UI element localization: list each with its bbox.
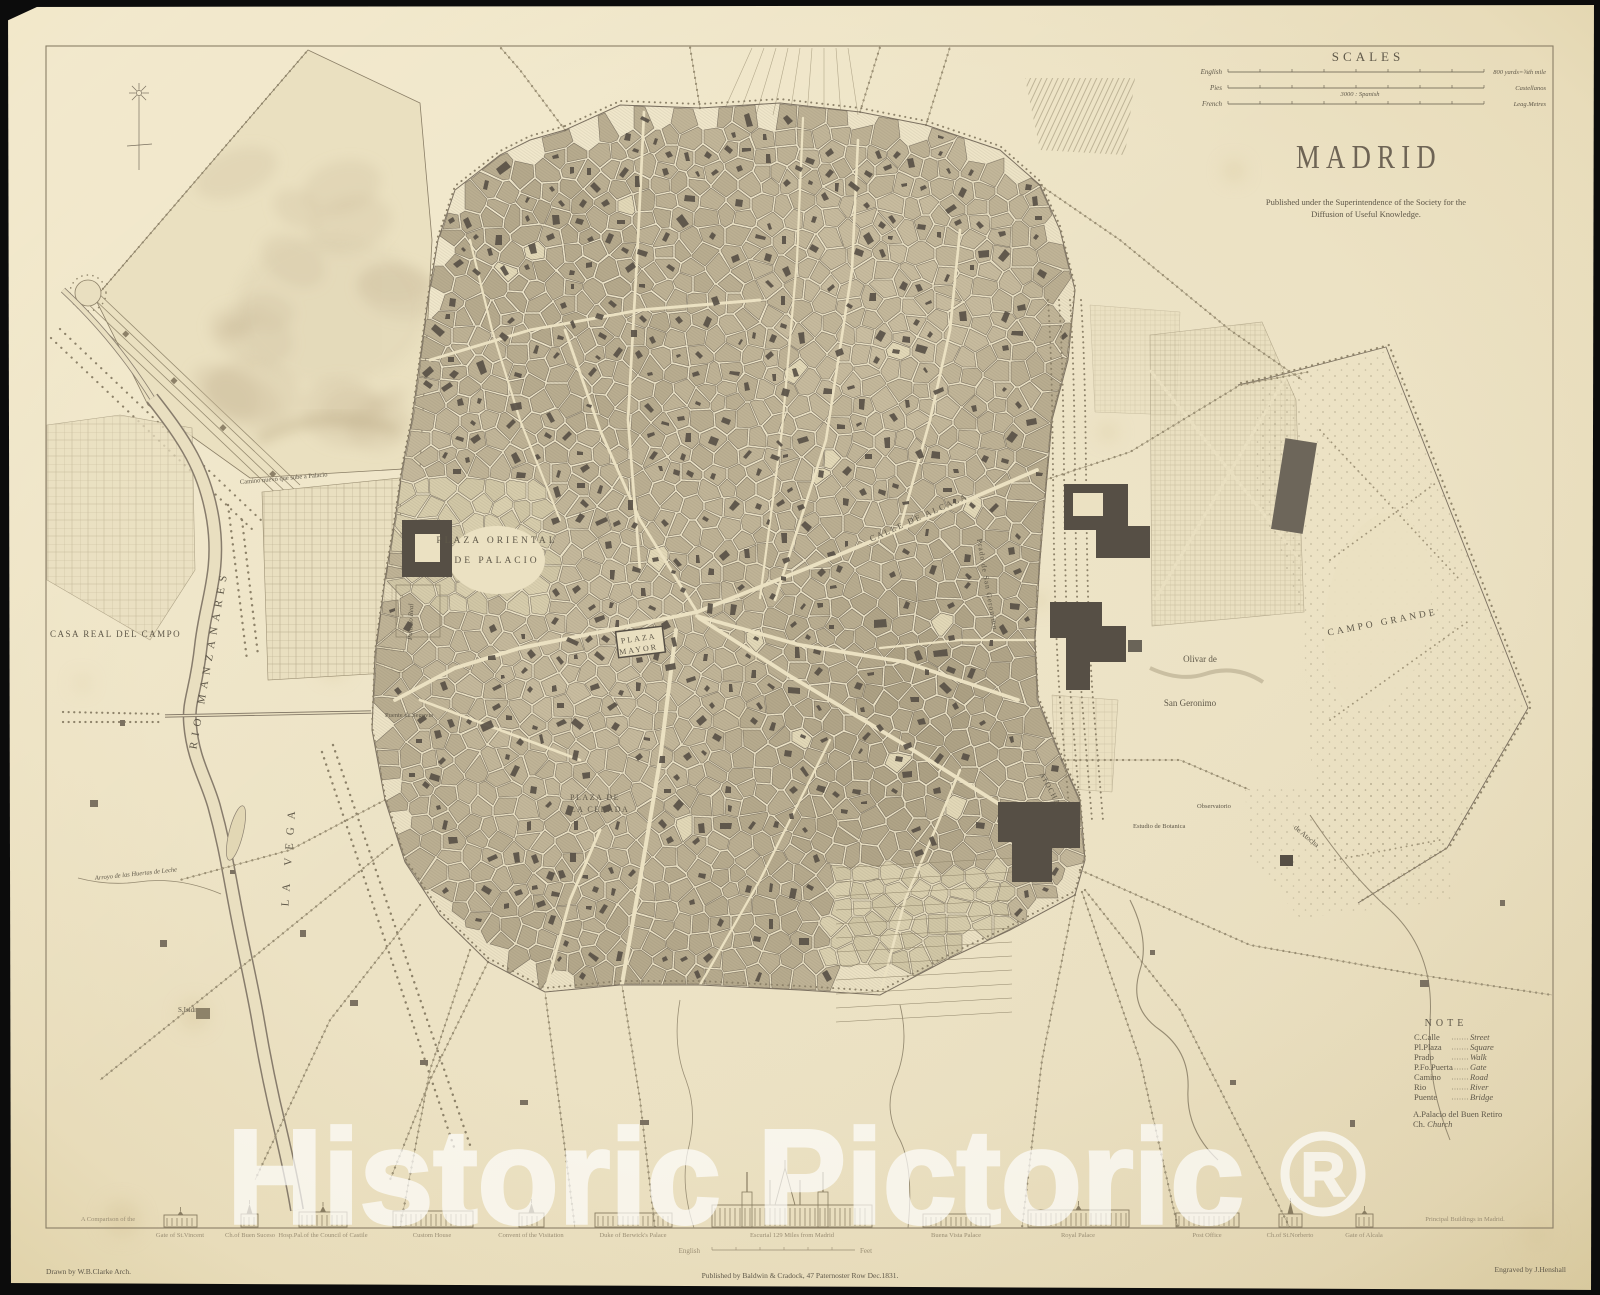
svg-text:Pl.Plaza: Pl.Plaza — [1414, 1042, 1442, 1052]
svg-text:Puente: Puente — [1414, 1092, 1437, 1102]
svg-text:Bridge: Bridge — [1470, 1092, 1493, 1102]
svg-text:Pies: Pies — [1209, 84, 1222, 92]
svg-text:C.Calle: C.Calle — [1414, 1032, 1440, 1042]
svg-text:Road: Road — [1469, 1072, 1489, 1082]
svg-text:Rio: Rio — [1414, 1082, 1426, 1092]
svg-text:Ch. Church: Ch. Church — [1413, 1119, 1452, 1129]
svg-text:San Geronimo: San Geronimo — [1164, 698, 1217, 708]
svg-text:Engraved by J.Henshall: Engraved by J.Henshall — [1495, 1265, 1566, 1274]
svg-text:Walk: Walk — [1470, 1052, 1487, 1062]
svg-text:Puente de Segovia: Puente de Segovia — [385, 712, 433, 719]
svg-text:A.Palacio del Buen Retiro: A.Palacio del Buen Retiro — [1413, 1109, 1502, 1119]
svg-text:Square: Square — [1470, 1042, 1494, 1052]
svg-text:SCALES: SCALES — [1332, 49, 1404, 64]
svg-text:Estudio de Botanica: Estudio de Botanica — [1133, 823, 1185, 830]
svg-text:Observatorio: Observatorio — [1197, 803, 1231, 810]
svg-text:Published under the Superinten: Published under the Superintendence of t… — [1266, 197, 1466, 207]
svg-text:Olivar de: Olivar de — [1183, 654, 1217, 664]
svg-text:Principal Buildings in Madrid.: Principal Buildings in Madrid. — [1425, 1216, 1505, 1223]
svg-text:PLAZA ORIENTAL: PLAZA ORIENTAL — [436, 536, 557, 546]
svg-text:PLAZA DE: PLAZA DE — [570, 793, 620, 802]
svg-text:800 yards=¾th mile: 800 yards=¾th mile — [1493, 69, 1546, 76]
svg-text:R: R — [1301, 1141, 1346, 1210]
svg-text:Prado: Prado — [1414, 1052, 1434, 1062]
svg-text:Ch.of St.Norberto: Ch.of St.Norberto — [1267, 1232, 1314, 1239]
svg-text:CASA REAL DEL CAMPO: CASA REAL DEL CAMPO — [50, 629, 181, 639]
svg-text:Historic Pictoric: Historic Pictoric — [227, 1103, 1244, 1252]
svg-text:Drawn by W.B.Clarke Arch.: Drawn by W.B.Clarke Arch. — [46, 1267, 131, 1276]
svg-text:River: River — [1469, 1082, 1489, 1092]
svg-text:Gate: Gate — [1470, 1062, 1487, 1072]
svg-text:French: French — [1201, 100, 1222, 108]
svg-text:Camino: Camino — [1414, 1072, 1441, 1082]
svg-text:Castellanos: Castellanos — [1515, 85, 1546, 92]
svg-text:LA CEBADA: LA CEBADA — [571, 805, 630, 814]
svg-text:Gate of Alcala: Gate of Alcala — [1345, 1232, 1383, 1239]
svg-text:Palacio Real: Palacio Real — [406, 603, 415, 641]
svg-text:Published by Baldwin & Cradock: Published by Baldwin & Cradock, 47 Pater… — [702, 1271, 899, 1280]
svg-text:English: English — [1200, 68, 1223, 76]
svg-text:3000 : Spanish: 3000 : Spanish — [1340, 91, 1380, 98]
svg-text:Diffusion of Useful Knowledge.: Diffusion of Useful Knowledge. — [1311, 209, 1421, 219]
svg-text:A Comparison of the: A Comparison of the — [81, 1216, 135, 1223]
svg-text:DE PALACIO: DE PALACIO — [454, 556, 539, 566]
svg-text:Street: Street — [1470, 1032, 1490, 1042]
svg-text:NOTE: NOTE — [1425, 1018, 1468, 1029]
svg-text:P.Fo.Puerta: P.Fo.Puerta — [1414, 1062, 1453, 1072]
svg-text:Gate of St.Vincent: Gate of St.Vincent — [156, 1232, 204, 1239]
svg-text:MADRID: MADRID — [1296, 139, 1442, 176]
svg-text:Leag.Metres: Leag.Metres — [1513, 101, 1547, 108]
